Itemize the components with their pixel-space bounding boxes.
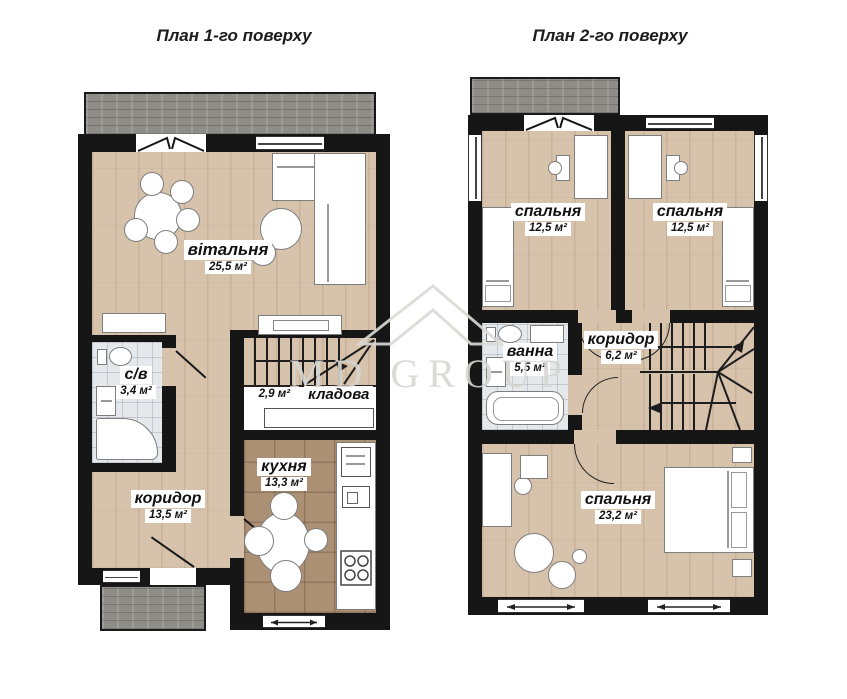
window-glass-line — [648, 123, 712, 125]
measure-arrow-icon — [498, 600, 584, 614]
bed-seam — [486, 280, 509, 282]
chair — [124, 218, 148, 242]
bathtub-inner — [493, 397, 559, 421]
stairs — [244, 338, 376, 385]
room-label-bedroom3: спальня 23,2 м² — [566, 491, 670, 524]
wall — [482, 310, 754, 323]
desk — [574, 135, 608, 199]
room-area: 2,9 м² — [255, 388, 295, 402]
french-door-opening — [136, 134, 206, 152]
balcony — [470, 77, 620, 115]
bed-seam — [726, 280, 749, 282]
room-label-corridor: коридор 13,5 м² — [116, 490, 220, 523]
desk — [482, 453, 512, 527]
room-name: коридор — [584, 331, 659, 349]
sofa-seam — [327, 204, 329, 282]
bathtub-icon — [486, 391, 564, 425]
wall — [230, 430, 390, 440]
floorplan-image: План 1-го поверху План 2-го поверху — [0, 0, 847, 699]
window-glass-line — [475, 137, 477, 199]
pillow — [731, 512, 747, 548]
bath-shelf — [530, 325, 564, 343]
wall — [230, 330, 244, 613]
window — [263, 615, 325, 628]
desk — [628, 135, 662, 199]
chair — [270, 560, 302, 592]
room-area: 13,3 м² — [261, 477, 307, 491]
tv-stand — [258, 315, 342, 335]
room-label-storage: 2,9 м² кладова — [254, 386, 374, 403]
room-name: спальня — [581, 491, 655, 509]
storage-closet — [264, 408, 374, 428]
pillow — [725, 285, 751, 302]
plan-first-floor: с/в 3,4 м² 2,9 м² кладо — [78, 88, 390, 653]
window-glass-line — [105, 577, 138, 579]
measure-arrow-icon — [648, 600, 730, 614]
entrance-door-opening — [150, 568, 196, 585]
room-label-corridor: коридор 6,2 м² — [584, 331, 658, 364]
room-label-bedroom1: спальня 12,5 м² — [504, 203, 592, 236]
wall — [611, 131, 625, 323]
plan2-title: План 2-го поверху — [460, 26, 760, 46]
pouf-small — [572, 549, 587, 564]
stove-burners — [340, 550, 372, 586]
desk-chair-seat — [514, 477, 532, 495]
plan-second-floor: спальня 12,5 м² спальня 12,5 м² ванна 5,… — [468, 75, 768, 620]
bath-door-opening — [568, 375, 582, 415]
bedroom2-door-opening — [632, 310, 670, 323]
room-area: 3,4 м² — [116, 385, 156, 399]
bed-seam — [727, 471, 729, 548]
stove-icon — [340, 550, 372, 586]
window — [754, 135, 768, 201]
window — [103, 570, 140, 583]
room-area: 12,5 м² — [667, 222, 713, 236]
room-label-bath: ванна 5,5 м² — [500, 343, 560, 376]
toilet-tank-icon — [97, 349, 107, 365]
sink-detail — [101, 400, 112, 402]
sink-bowl — [347, 492, 358, 504]
double-bed — [664, 467, 754, 553]
room-name: спальня — [511, 203, 585, 221]
entrance-porch — [100, 585, 206, 631]
room-area: 25,5 м² — [205, 261, 251, 275]
room-label-kitchen: кухня 13,3 м² — [246, 458, 322, 491]
pillow — [731, 472, 747, 508]
room-area: 5,5 м² — [510, 362, 550, 376]
sink-icon — [342, 486, 370, 508]
terrace — [84, 92, 376, 136]
room-area: 13,5 м² — [145, 509, 191, 523]
fridge-detail — [346, 463, 365, 465]
bedroom1-door-opening — [578, 310, 616, 323]
wall — [376, 134, 390, 630]
chair — [176, 208, 200, 232]
desk-chair-seat — [674, 161, 688, 175]
chair — [140, 172, 164, 196]
room-name: коридор — [131, 490, 206, 508]
pouf — [548, 561, 576, 589]
stairs-icon — [244, 338, 376, 385]
toilet-icon — [498, 325, 522, 343]
fridge-detail — [346, 455, 365, 457]
room-area: 12,5 м² — [525, 222, 571, 236]
room-label-bedroom2: спальня 12,5 м² — [646, 203, 734, 236]
french-door-icon — [136, 134, 206, 152]
window — [646, 117, 714, 129]
toilet-icon — [109, 347, 132, 366]
armchair — [514, 533, 554, 573]
toilet-tank-icon — [486, 327, 496, 342]
room-name: спальня — [653, 203, 727, 221]
room-area: 23,2 м² — [595, 510, 641, 524]
window-glass-line — [258, 143, 322, 145]
french-door-icon — [524, 115, 594, 131]
wall — [468, 115, 768, 131]
sideboard — [102, 313, 166, 333]
window — [648, 599, 730, 613]
window — [256, 136, 324, 150]
nightstand — [732, 559, 752, 577]
chair — [244, 526, 274, 556]
window — [468, 135, 482, 201]
wall — [482, 430, 754, 444]
fridge-icon — [341, 447, 371, 477]
room-name: кладова — [304, 386, 373, 403]
plan1-title: План 1-го поверху — [78, 26, 390, 46]
nightstand — [732, 447, 752, 463]
room-name: вітальня — [184, 240, 273, 260]
chair — [270, 492, 298, 520]
window-glass-line — [761, 137, 763, 199]
room-name: ванна — [503, 343, 558, 361]
side-table — [520, 455, 548, 479]
sofa-chaise — [314, 153, 366, 285]
wall — [78, 134, 92, 585]
kitchen-door-opening — [230, 516, 244, 558]
wall — [92, 463, 176, 472]
chair — [170, 180, 194, 204]
pillow — [485, 285, 511, 302]
chair — [304, 528, 328, 552]
measure-arrow-icon — [263, 616, 325, 629]
room-label-wc: с/в 3,4 м² — [106, 366, 166, 399]
room-area: 6,2 м² — [601, 350, 641, 364]
wall — [78, 134, 390, 152]
tv-detail — [273, 320, 329, 331]
room-name: с/в — [120, 366, 151, 384]
room-label-living: вітальня 25,5 м² — [168, 240, 288, 274]
french-door-opening — [524, 115, 594, 131]
desk-chair-seat — [548, 161, 562, 175]
master-door-opening — [574, 430, 616, 444]
room-name: кухня — [257, 458, 310, 476]
window — [498, 599, 584, 613]
